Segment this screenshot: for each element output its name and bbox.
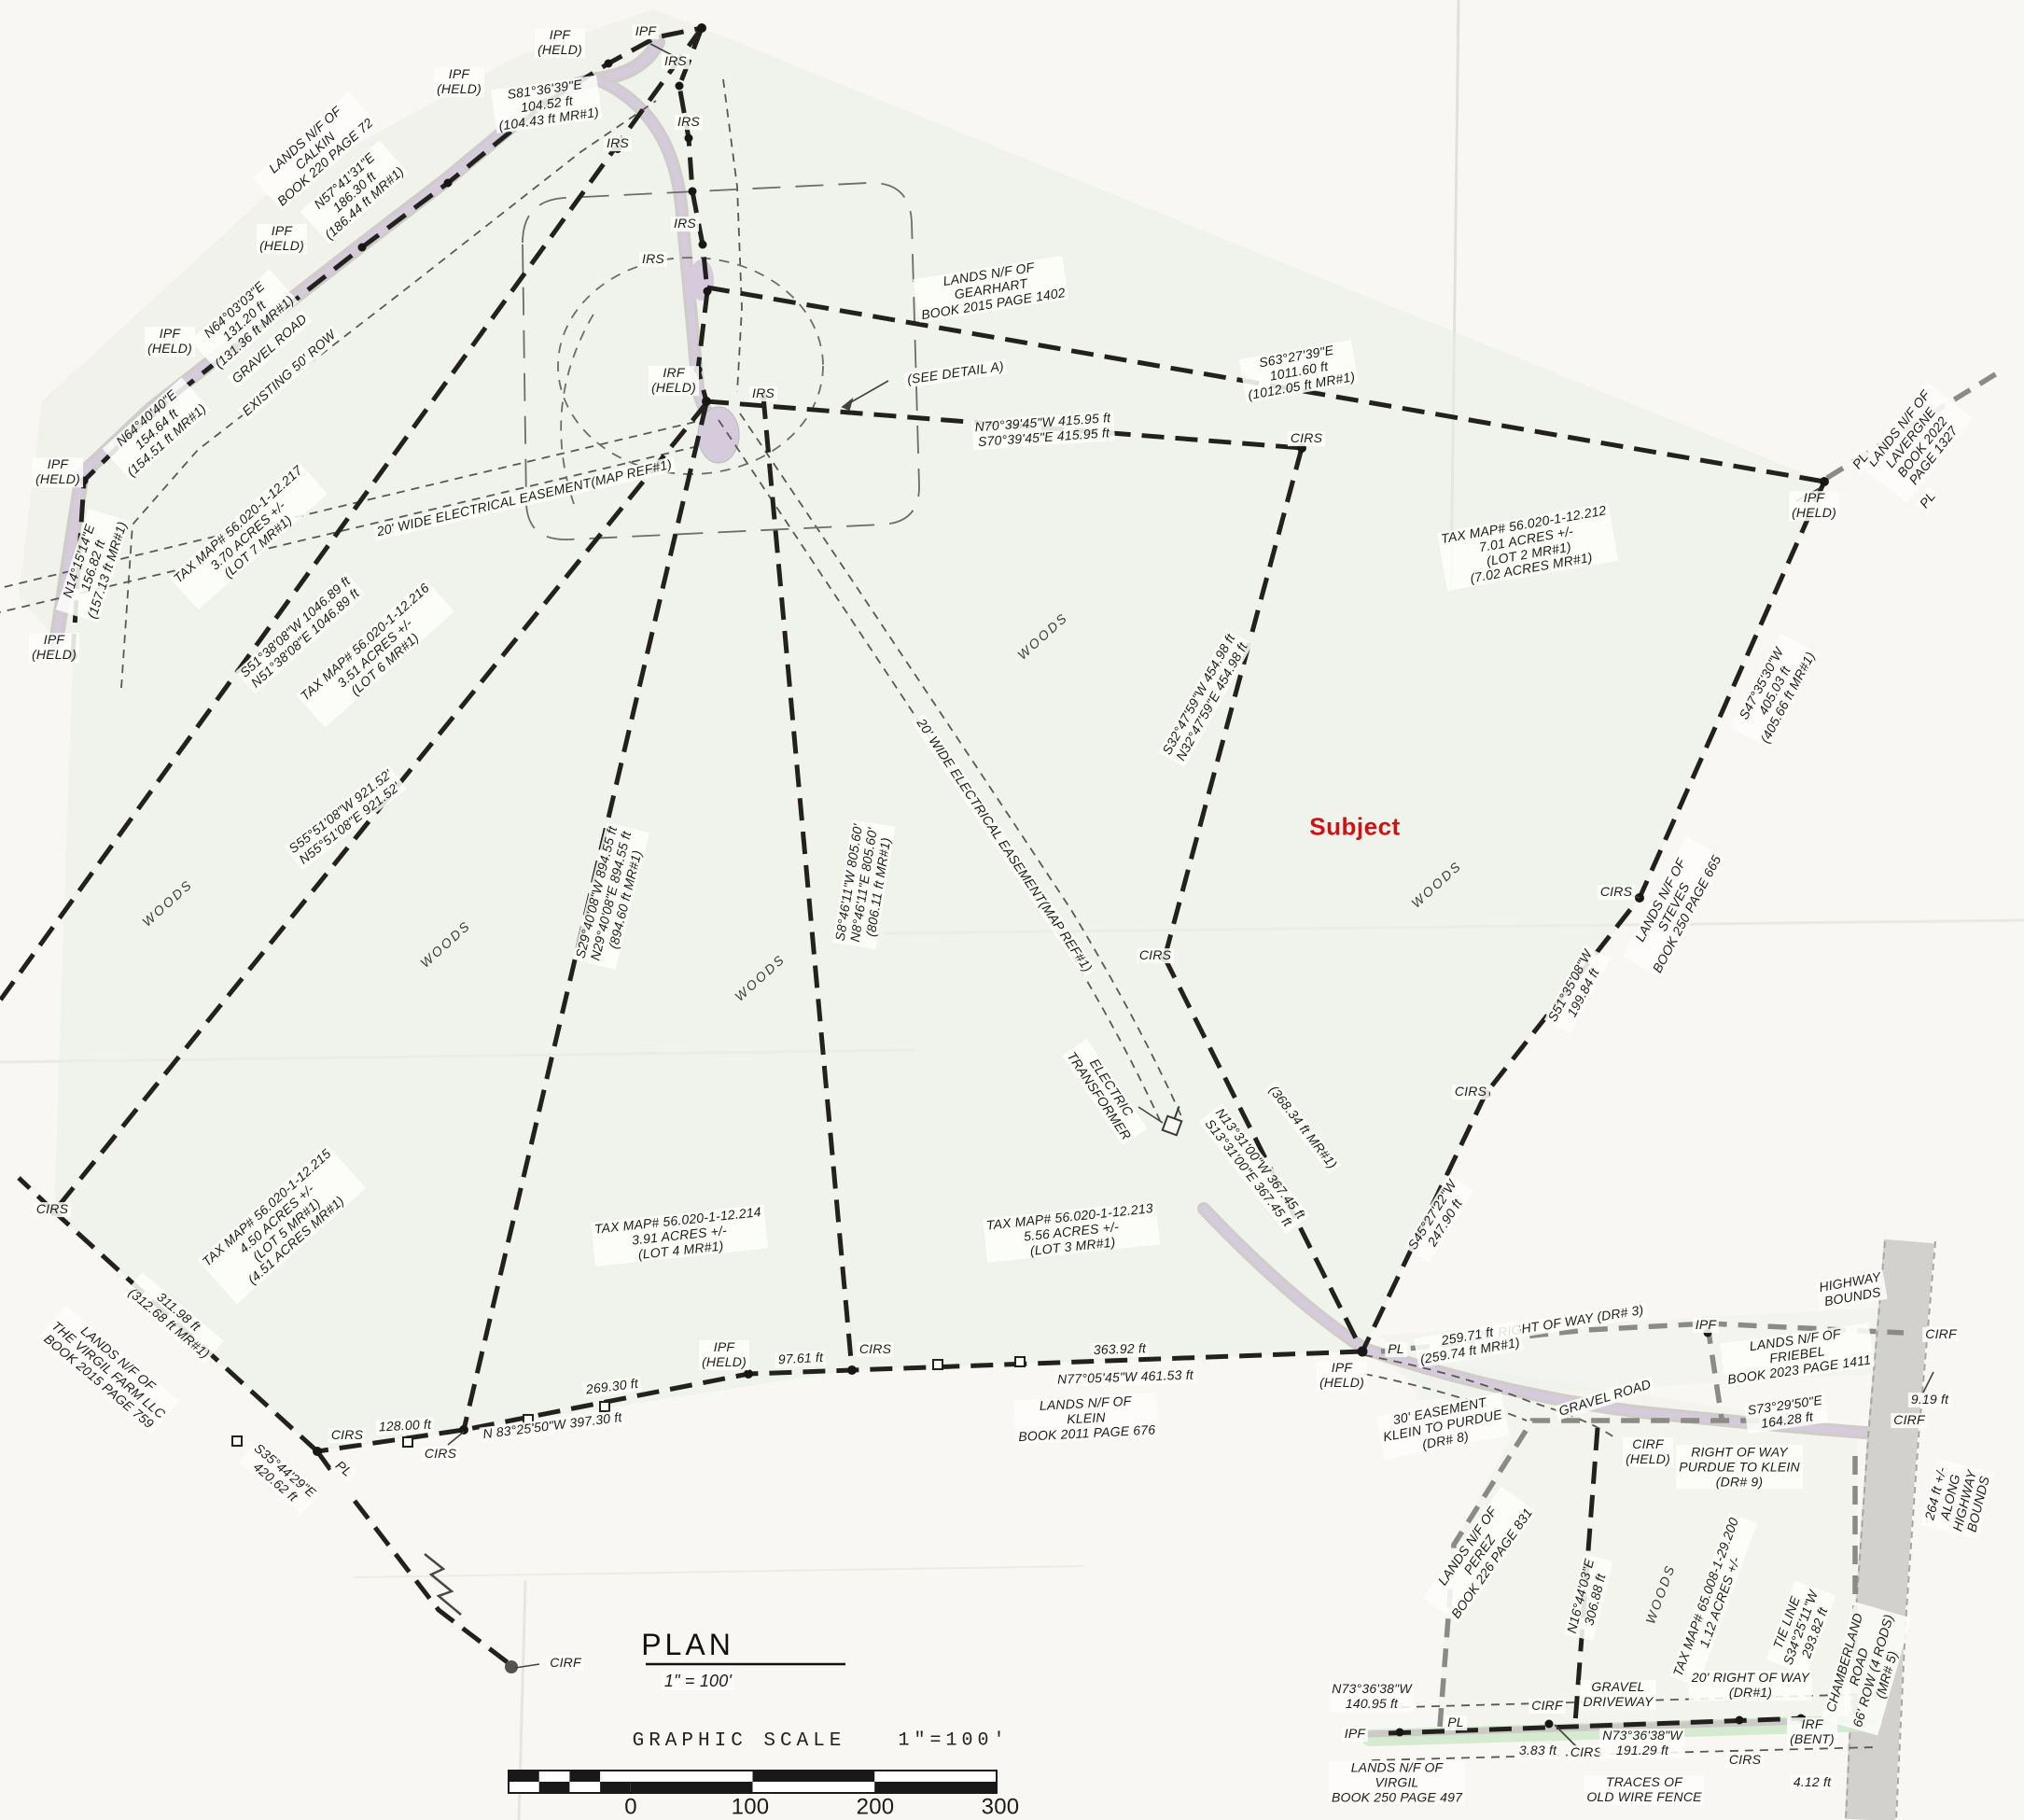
map-label: GRAPHIC SCALE — [630, 1730, 849, 1753]
map-label: S51°35'08"W 199.84 ft — [1544, 945, 1611, 1034]
map-label: 30' EASEMENT KLEIN TO PURDUE (DR# 8) — [1376, 1393, 1509, 1460]
map-label: CIRF — [1922, 1327, 1959, 1342]
map-label: N70°39'45"W 415.95 ft S70°39'45"E 415.95… — [971, 411, 1115, 450]
map-label: 0 — [621, 1794, 640, 1819]
map-label: LANDS N/F OF GEARHART BOOK 2015 PAGE 140… — [913, 256, 1069, 323]
map-label: PLAN — [638, 1628, 737, 1661]
map-label: WOODS — [1013, 609, 1074, 665]
map-label: IRS — [749, 386, 777, 401]
map-label: 264 ft +/- ALONG HIGHWAY BOUNDS — [1920, 1459, 1994, 1539]
map-label: CIRS — [1452, 1085, 1489, 1099]
map-label: 20' WIDE ELECTRICAL EASEMENT(MAP REF#1) — [372, 456, 676, 540]
map-label: HIGHWAY BOUNDS — [1815, 1269, 1887, 1310]
map-label: S45°27'22"W 247.90 ft — [1404, 1175, 1474, 1263]
map-label: 259.71 ft (259.74 ft MR#1) — [1414, 1321, 1524, 1368]
map-label: 97.61 ft — [775, 1351, 826, 1368]
map-label: IPF (HELD) — [33, 457, 83, 487]
map-label: N64°03'03"E 131.20 ft (131.36 ft MR#1) — [190, 269, 300, 373]
map-label: S47°35'30"W 405.03 ft (405.66 ft MR#1) — [1730, 633, 1820, 748]
label-layer: IPF (HELD)IPFIRSIRSIPF (HELD)S81°36'39"E… — [0, 0, 2024, 1820]
survey-plat-sheet: IPF (HELD)IPFIRSIRSIPF (HELD)S81°36'39"E… — [0, 0, 2024, 1820]
map-label: CIRS — [1726, 1753, 1764, 1768]
map-label: 100 — [729, 1794, 773, 1819]
map-label: LANDS N/F OF LAVERGNE BOOK 2022 PAGE 132… — [1861, 382, 1974, 503]
map-label: 1"=100' — [895, 1731, 1012, 1753]
map-label: 20' RIGHT OF WAY (DR#1) — [1689, 1671, 1812, 1701]
map-label: IPF (HELD) — [699, 1340, 749, 1370]
map-label: CIRS — [1288, 431, 1325, 446]
map-label: N73°36'38"W 140.95 ft — [1329, 1682, 1414, 1712]
map-label: S63°27'39"E 1011.60 ft (1012.05 ft MR#1) — [1239, 340, 1360, 403]
map-label: IPF (HELD) — [434, 67, 484, 97]
map-label: N64°40'40"E 154.64 ft (154.51 ft MR#1) — [103, 377, 212, 482]
map-label: CIRS — [1137, 948, 1174, 963]
map-label: TAX MAP# 56.020-1-12.212 7.01 ACRES +/- … — [1437, 503, 1618, 592]
map-label: CIRS — [857, 1342, 894, 1357]
map-label: IPF (HELD) — [29, 633, 79, 663]
map-label: 3.83 ft — [1516, 1743, 1559, 1758]
map-label: TRACES OF OLD WIRE FENCE — [1584, 1775, 1704, 1805]
map-label: WOODS — [416, 917, 477, 973]
map-label: Subject — [1306, 813, 1403, 840]
map-label: GRAVEL ROAD — [1555, 1377, 1655, 1421]
map-label: S55°51'08"W 921.52' N55°51'08"E 921.52' — [284, 765, 406, 870]
map-label: IPF (HELD) — [535, 28, 585, 58]
map-label: TAX MAP# 56.020-1-12.217 3.70 ACRES +/- … — [169, 461, 328, 609]
map-label: 9.19 ft — [1908, 1393, 1951, 1407]
map-label: CIRF (HELD) — [1623, 1437, 1673, 1467]
map-label: (368.34 ft MR#1) — [1264, 1081, 1342, 1174]
map-label: IRS — [604, 136, 632, 151]
map-label: PL — [1445, 1715, 1467, 1730]
map-label: CIRF — [1891, 1413, 1927, 1428]
map-label: IPF — [1342, 1727, 1368, 1742]
map-label: PL — [1916, 487, 1941, 513]
map-label: CIRF — [547, 1656, 583, 1671]
map-label: LANDS N/F OF PEREZ BOOK 226 PAGE 831 — [1423, 1487, 1538, 1624]
map-label: N73°36'38"W 191.29 ft — [1599, 1729, 1684, 1758]
map-label: LANDS N/F OF KLEIN BOOK 2011 PAGE 676 — [1013, 1393, 1158, 1444]
map-label: N 83°25'50"W 397.30 ft — [480, 1410, 626, 1443]
map-label: S29°40'08"W 894.55 ft N29°40'08"E 894.55… — [573, 822, 650, 970]
map-label: PL — [330, 1456, 356, 1481]
map-label: ELECTRIC TRANSFORMER — [1062, 1039, 1147, 1145]
map-label: GRAVEL DRIVEWAY — [1581, 1680, 1656, 1710]
map-label: (SEE DETAIL A) — [903, 358, 1008, 387]
map-label: 300 — [979, 1794, 1023, 1819]
map-label: CIRF — [1528, 1699, 1565, 1714]
map-label: S35°44'29"E 420.62 ft — [240, 1439, 321, 1514]
map-label: 363.92 ft — [1091, 1341, 1150, 1358]
map-label: N16°44'03"E 306.88 ft — [1564, 1555, 1612, 1642]
map-label: S81°36'39"E 104.52 ft (104.43 ft MR#1) — [491, 76, 603, 134]
map-label: 128.00 ft — [375, 1417, 434, 1435]
map-label: IRF (BENT) — [1787, 1717, 1837, 1747]
map-label: 269.30 ft — [582, 1376, 642, 1397]
map-label: TAX MAP# 56.020-1-12.215 4.50 ACRES +/- … — [198, 1144, 366, 1304]
map-label: IRF (HELD) — [649, 366, 699, 396]
map-label: 1" = 100' — [662, 1672, 734, 1690]
map-label: 200 — [854, 1794, 898, 1819]
map-label: IPF (HELD) — [1317, 1361, 1367, 1391]
map-label: S73°29'50"E 164.28 ft — [1744, 1393, 1828, 1433]
map-label: LANDS N/F OF FRIEBEL BOOK 2023 PAGE 1411 — [1720, 1323, 1875, 1387]
map-label: N14°15'14"E 156.82 ft (157.13 ft MR#1) — [56, 508, 131, 623]
map-label: IPF (HELD) — [145, 327, 195, 357]
map-label: RIGHT OF WAY PURDUE TO KLEIN (DR# 9) — [1676, 1445, 1803, 1489]
map-label: WOODS — [138, 875, 199, 932]
map-label: IPF — [1693, 1318, 1719, 1333]
map-label: CIRS — [34, 1202, 71, 1217]
map-label: PL — [1385, 1342, 1407, 1357]
map-label: 4.12 ft — [1791, 1775, 1834, 1790]
map-label: TAX MAP# 56.020-1-12.214 3.91 ACRES +/- … — [591, 1205, 768, 1267]
map-label: WOODS — [1407, 857, 1468, 914]
map-label: IRS — [639, 252, 667, 267]
map-label: IPF — [633, 24, 659, 39]
map-label: WOODS — [731, 950, 791, 1007]
map-label: IRS — [662, 54, 690, 69]
map-label: TAX MAP# 65.008-1-29.200 1.12 ACRES +/- — [1669, 1513, 1756, 1686]
map-label: IRS — [675, 115, 703, 130]
map-label: IRS — [671, 217, 699, 231]
map-label: CIRS — [1598, 885, 1635, 900]
map-label: IPF (HELD) — [257, 224, 307, 254]
map-label: LANDS N/F OF VIRGIL BOOK 250 PAGE 497 — [1329, 1760, 1465, 1804]
map-label: WOODS — [1642, 1560, 1680, 1629]
map-label: S32°47'59"W 454.98 ft N32°47'59"E 454.98… — [1159, 629, 1253, 766]
map-label: 20' WIDE ELECTRICAL EASEMENT(MAP REF#1) — [912, 714, 1096, 977]
map-label: N77°05'45"W 461.53 ft — [1054, 1367, 1196, 1387]
map-label: IPF (HELD) — [1789, 491, 1839, 521]
map-label: CIRS — [328, 1428, 366, 1443]
map-label: S8°46'11"W 805.60' N8°46'11"E 805.60' (8… — [832, 820, 896, 949]
map-label: CIRS — [422, 1447, 459, 1462]
map-label: TAX MAP# 56.020-1-12.213 5.56 ACRES +/- … — [983, 1201, 1160, 1264]
map-label: 311.98 ft (312.68 ft MR#1) — [123, 1272, 224, 1364]
map-label: CHAMBERLAND ROAD 66' ROW (4 RODS) (MR# 5… — [1822, 1602, 1912, 1735]
map-label: TIE LINE S34°25'11"W 293.82 ft — [1766, 1581, 1836, 1674]
map-label: LANDS N/F OF STEVES BOOK 250 PAGE 665 — [1623, 836, 1725, 977]
